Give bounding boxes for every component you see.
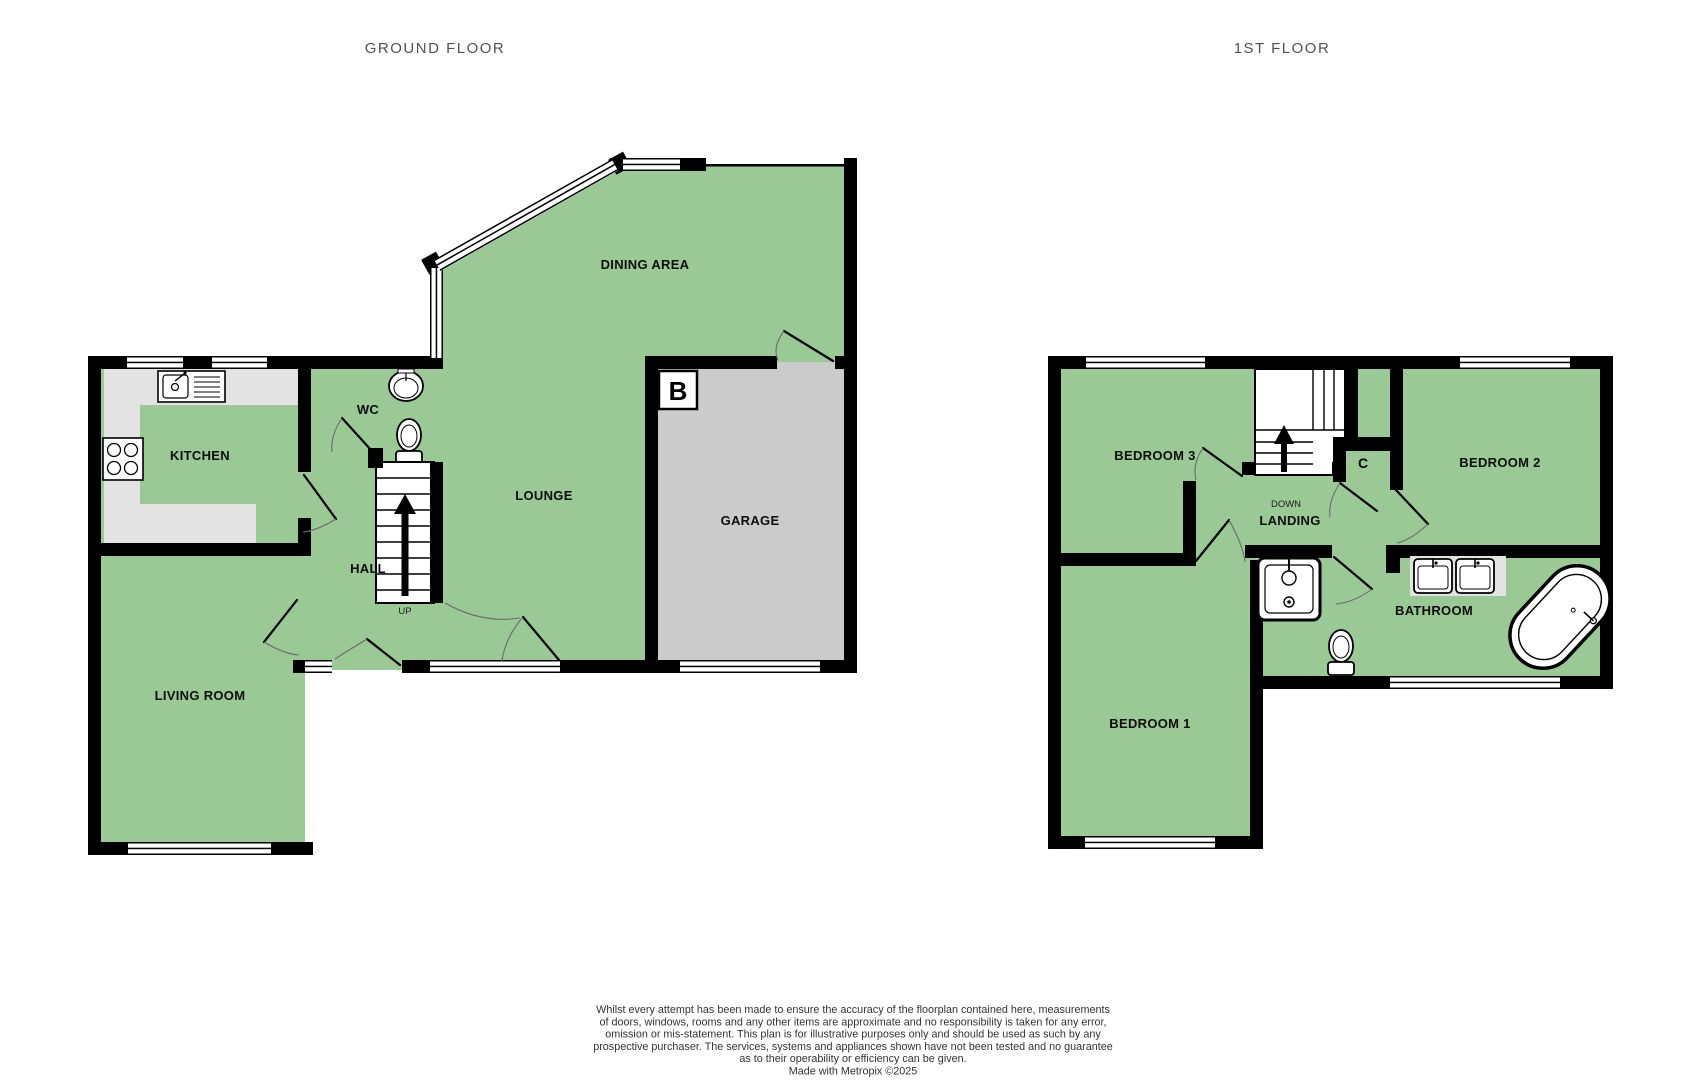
floorplan-canvas: GROUND FLOOR 1ST FLOOR	[0, 0, 1706, 1080]
landing-label: LANDING	[1259, 513, 1320, 528]
first-floor-plan: BEDROOM 3 C BEDROOM 2 DOWN LANDING BEDRO…	[1048, 356, 1624, 849]
garage-label: GARAGE	[721, 513, 780, 528]
floorplan-page: GROUND FLOOR 1ST FLOOR	[0, 0, 1706, 1080]
bathroom-sinks	[1410, 556, 1506, 596]
shower-icon	[1258, 558, 1320, 620]
bathroom-label: BATHROOM	[1395, 603, 1473, 618]
first-floor-title: 1ST FLOOR	[1234, 40, 1331, 57]
boiler-box: B	[659, 371, 697, 409]
disclaimer-line-4: prospective purchaser. The services, sys…	[593, 1041, 1113, 1053]
garage-door	[680, 660, 820, 673]
hob-icon	[103, 438, 143, 480]
wc-toilet-icon	[396, 419, 422, 464]
down-label: DOWN	[1271, 499, 1301, 510]
hall-label: HALL	[350, 561, 386, 576]
ground-floor-title: GROUND FLOOR	[365, 40, 506, 57]
wc-label: WC	[357, 402, 380, 417]
cupboard-label: C	[1358, 455, 1368, 471]
disclaimer-line-3: omission or mis-statement. This plan is …	[605, 1029, 1101, 1041]
first-floor-stairs	[1255, 369, 1345, 475]
up-label: UP	[398, 606, 411, 617]
ground-floor-plan: B DINING AREA KITCHEN WC LOUNGE GARAGE H…	[88, 152, 857, 855]
made-with-credit: Made with Metropix ©2025	[789, 1066, 918, 1078]
svg-text:B: B	[669, 376, 688, 406]
kitchen-sink-icon	[158, 371, 225, 402]
bedroom2-label: BEDROOM 2	[1459, 455, 1540, 470]
living-room-label: LIVING ROOM	[155, 688, 246, 703]
bathroom-toilet-icon	[1328, 630, 1354, 675]
disclaimer-line-2: of doors, windows, rooms and any other i…	[599, 1016, 1106, 1028]
dining-area-label: DINING AREA	[601, 257, 690, 272]
disclaimer-text: Whilst every attempt has been made to en…	[593, 1004, 1113, 1078]
bedroom1-label: BEDROOM 1	[1109, 716, 1190, 731]
kitchen-label: KITCHEN	[170, 448, 230, 463]
disclaimer-line-1: Whilst every attempt has been made to en…	[596, 1004, 1110, 1016]
bedroom3-label: BEDROOM 3	[1114, 448, 1195, 463]
lounge-label: LOUNGE	[515, 488, 572, 503]
ground-stairs	[376, 462, 434, 603]
disclaimer-line-5: as to their operability or efficiency ca…	[739, 1053, 966, 1065]
